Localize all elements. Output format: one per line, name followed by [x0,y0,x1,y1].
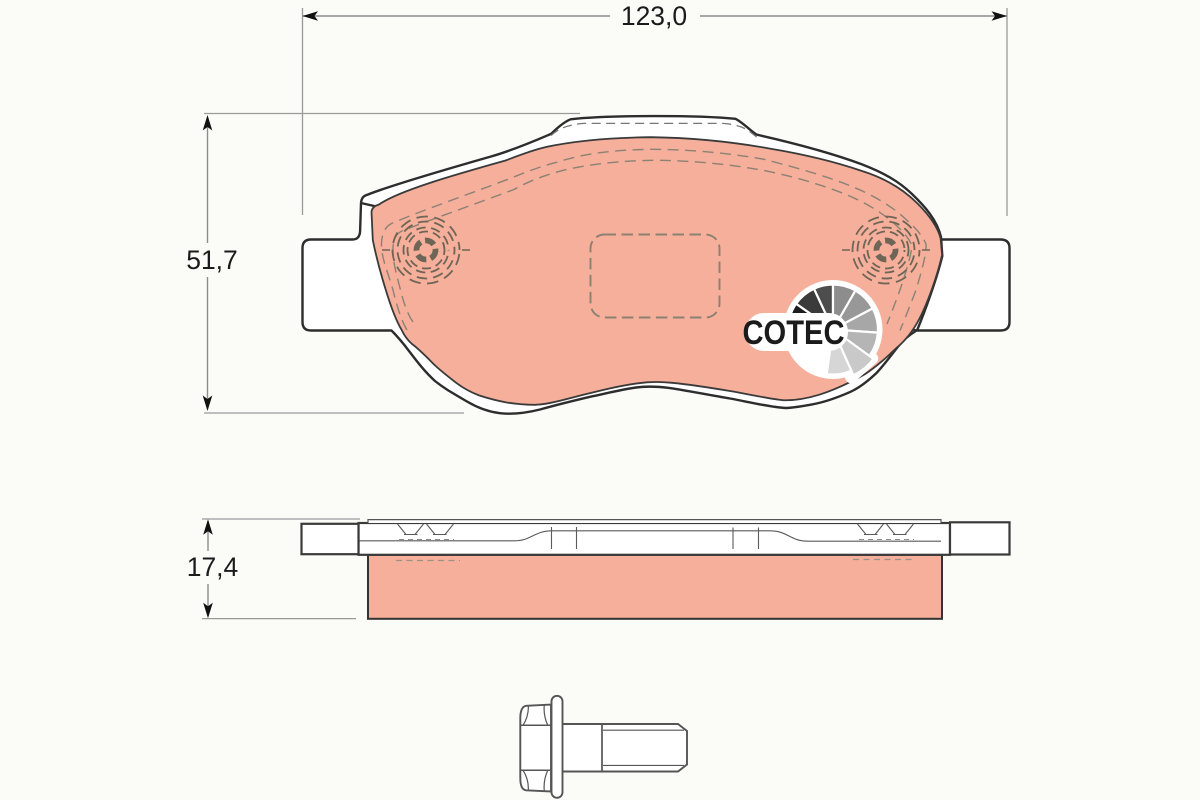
svg-text:COTEC: COTEC [743,314,845,352]
svg-text:123,0: 123,0 [621,1,687,31]
svg-text:17,4: 17,4 [187,552,239,582]
svg-text:51,7: 51,7 [186,245,238,275]
